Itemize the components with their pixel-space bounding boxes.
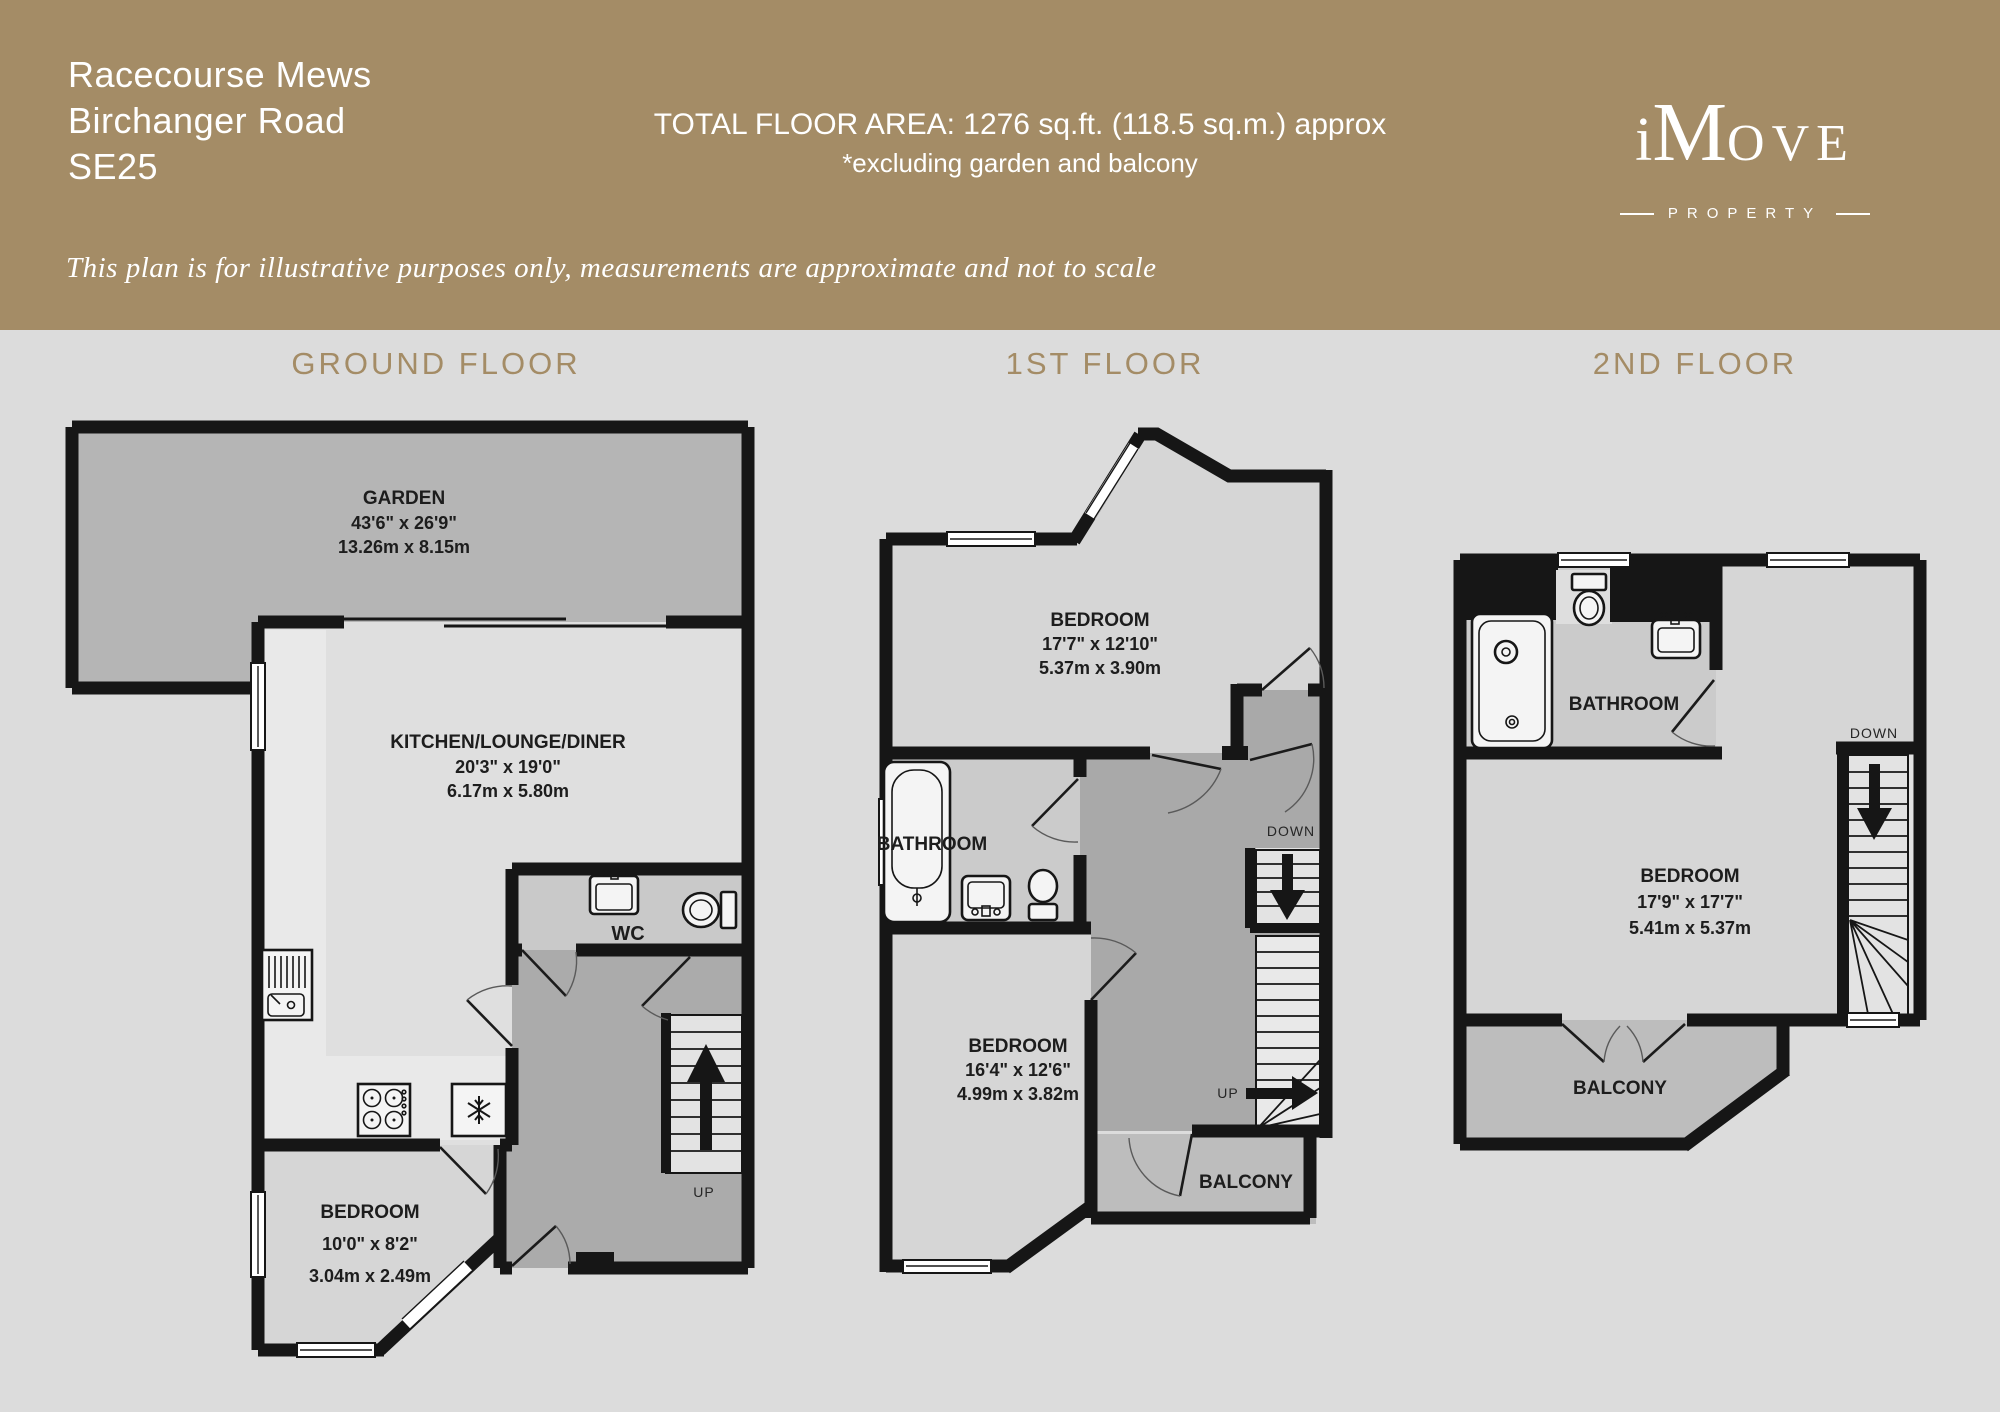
disclaimer-text: This plan is for illustrative purposes o… <box>66 252 1157 285</box>
second-floor-plan: BATHROOM DOWN BEDROOM 17'9" x 17'7" 5.41… <box>1450 550 1930 1170</box>
bathroom-label: BATHROOM <box>1569 694 1679 715</box>
first-floor-heading: 1ST FLOOR <box>905 346 1305 382</box>
back-bedroom-window-bottom <box>903 1260 991 1273</box>
stairs-window-bottom <box>1847 1013 1899 1027</box>
logo-subtitle: PROPERTY <box>1668 205 1822 222</box>
ground-bedroom-label: BEDROOM <box>320 1202 419 1223</box>
balcony-label: BALCONY <box>1199 1172 1293 1193</box>
bedroom-window-left <box>251 1192 265 1277</box>
front-bedroom-dims-ft: 17'7" x 12'10" <box>1042 634 1158 654</box>
property-address: Racecourse Mews Birchanger Road SE25 <box>68 52 372 190</box>
bathroom-sink-icon <box>962 876 1010 920</box>
wc-label: WC <box>611 923 644 945</box>
bathroom-sink-icon <box>1652 612 1700 658</box>
toilet-icon <box>1572 574 1606 625</box>
hob-icon <box>358 1084 410 1136</box>
front-bedroom-label: BEDROOM <box>1050 610 1149 631</box>
total-floor-area: TOTAL FLOOR AREA: 1276 sq.ft. (118.5 sq.… <box>560 108 1480 142</box>
bedroom-dims-ft: 17'9" x 17'7" <box>1637 892 1743 912</box>
kitchen-window-left <box>251 663 265 750</box>
ground-floor-plan: GARDEN 43'6" x 26'9" 13.26m x 8.15m KITC… <box>60 415 780 1375</box>
address-line-2: Birchanger Road <box>68 98 372 144</box>
second-floor-heading: 2ND FLOOR <box>1495 346 1895 382</box>
garden-label: GARDEN <box>363 488 445 509</box>
first-floor-plan: BEDROOM 17'7" x 12'10" 5.37m x 3.90m BAT… <box>865 425 1340 1295</box>
garden-dims-m: 13.26m x 8.15m <box>338 537 470 557</box>
logo-ove: OVE <box>1727 115 1855 172</box>
imove-logo: iMOVE PROPERTY <box>1570 78 1920 222</box>
staircase-down <box>1842 753 1914 1020</box>
shower-icon <box>1472 614 1552 748</box>
header-banner: Racecourse Mews Birchanger Road SE25 TOT… <box>0 0 2000 330</box>
front-bedroom-dims-m: 5.37m x 3.90m <box>1039 658 1161 678</box>
address-line-3: SE25 <box>68 144 372 190</box>
kitchen-dims-m: 6.17m x 5.80m <box>447 781 569 801</box>
wc-sink-icon <box>590 869 638 914</box>
kitchen-sink-icon <box>262 950 312 1020</box>
balcony-label: BALCONY <box>1573 1078 1667 1099</box>
first-down-label: DOWN <box>1267 823 1315 839</box>
ground-bedroom-dims-m: 3.04m x 2.49m <box>309 1266 431 1286</box>
logo-subtitle-row: PROPERTY <box>1570 205 1920 222</box>
logo-wordmark: iMOVE <box>1570 78 1920 211</box>
ground-bedroom-dims-ft: 10'0" x 8'2" <box>322 1234 418 1254</box>
fridge-freezer-icon <box>452 1084 506 1136</box>
bedroom-label: BEDROOM <box>1640 866 1739 887</box>
kitchen-dims-ft: 20'3" x 19'0" <box>455 757 561 777</box>
floorplan-page: Racecourse Mews Birchanger Road SE25 TOT… <box>0 0 2000 1412</box>
ground-floor-heading: GROUND FLOOR <box>236 346 636 382</box>
garden-dims-ft: 43'6" x 26'9" <box>351 513 457 533</box>
wc-toilet-icon <box>683 892 736 928</box>
front-bedroom-window-top <box>947 532 1035 546</box>
back-bedroom-dims-m: 4.99m x 3.82m <box>957 1084 1079 1104</box>
logo-i: i <box>1635 106 1652 174</box>
area-note: *excluding garden and balcony <box>560 148 1480 179</box>
logo-rule-right <box>1836 213 1870 215</box>
bathroom-wall-block-right <box>1610 566 1716 622</box>
bedroom-dims-m: 5.41m x 5.37m <box>1629 918 1751 938</box>
bathroom-label: BATHROOM <box>877 834 987 855</box>
address-line-1: Racecourse Mews <box>68 52 372 98</box>
staircase-down <box>1256 848 1320 926</box>
logo-rule-left <box>1620 213 1654 215</box>
second-down-label: DOWN <box>1850 725 1898 741</box>
front-door-threshold <box>576 1252 614 1268</box>
bedroom-window-bottom <box>297 1343 375 1357</box>
staircase-up <box>666 1013 742 1173</box>
staircase-up <box>1246 936 1320 1132</box>
ground-up-label: UP <box>693 1184 714 1200</box>
bathroom-wall-block-left <box>1466 566 1558 620</box>
bedroom-window-top <box>1767 553 1849 567</box>
first-up-label: UP <box>1217 1085 1238 1101</box>
bathroom-window-top <box>1558 553 1630 567</box>
toilet-icon <box>1029 870 1057 920</box>
kitchen-label: KITCHEN/LOUNGE/DINER <box>390 732 626 753</box>
logo-m: M <box>1652 86 1727 179</box>
back-bedroom-dims-ft: 16'4" x 12'6" <box>965 1060 1071 1080</box>
back-bedroom-label: BEDROOM <box>968 1036 1067 1057</box>
